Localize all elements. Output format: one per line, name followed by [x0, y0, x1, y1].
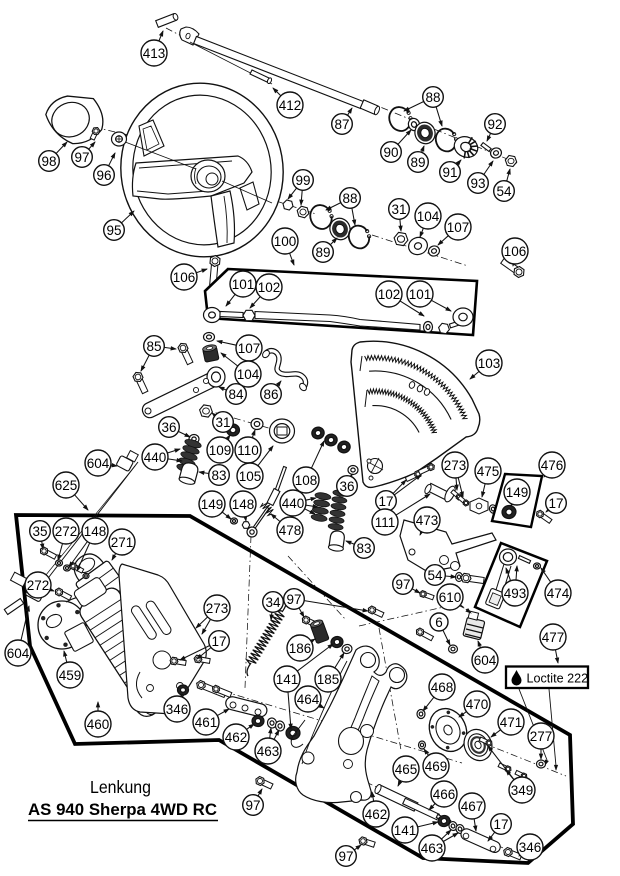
- svg-text:466: 466: [433, 787, 456, 802]
- svg-text:604: 604: [474, 653, 497, 668]
- svg-text:440: 440: [282, 496, 305, 511]
- svg-text:101: 101: [409, 287, 432, 302]
- svg-text:625: 625: [55, 478, 78, 493]
- svg-text:17: 17: [548, 496, 563, 511]
- svg-text:462: 462: [365, 807, 388, 822]
- svg-text:17: 17: [493, 817, 508, 832]
- svg-text:469: 469: [425, 759, 448, 774]
- svg-text:84: 84: [228, 387, 244, 402]
- svg-text:17: 17: [211, 634, 226, 649]
- svg-text:89: 89: [410, 155, 425, 170]
- svg-text:476: 476: [541, 458, 564, 473]
- svg-text:89: 89: [315, 245, 330, 260]
- svg-text:97: 97: [286, 592, 301, 607]
- svg-text:459: 459: [59, 668, 82, 683]
- svg-text:109: 109: [209, 443, 232, 458]
- svg-text:493: 493: [504, 586, 527, 601]
- svg-text:Lenkung: Lenkung: [90, 777, 151, 797]
- svg-text:108: 108: [295, 473, 318, 488]
- svg-text:110: 110: [237, 443, 259, 458]
- svg-text:461: 461: [195, 715, 218, 730]
- svg-text:111: 111: [375, 515, 396, 530]
- svg-text:97: 97: [245, 798, 260, 813]
- svg-text:105: 105: [239, 469, 262, 484]
- svg-text:470: 470: [466, 697, 489, 712]
- svg-text:86: 86: [263, 387, 278, 402]
- svg-text:54: 54: [427, 568, 443, 583]
- svg-text:186: 186: [289, 641, 312, 656]
- svg-text:148: 148: [84, 524, 107, 539]
- svg-text:99: 99: [295, 173, 310, 188]
- svg-text:440: 440: [144, 450, 167, 465]
- svg-text:34: 34: [265, 595, 281, 610]
- svg-text:Loctite 222: Loctite 222: [527, 672, 589, 686]
- svg-text:96: 96: [96, 168, 111, 183]
- svg-text:604: 604: [7, 646, 30, 661]
- svg-text:100: 100: [274, 234, 297, 249]
- svg-text:97: 97: [338, 849, 353, 864]
- svg-text:141: 141: [394, 823, 417, 838]
- svg-text:346: 346: [166, 702, 189, 717]
- svg-text:463: 463: [257, 744, 280, 759]
- svg-text:272: 272: [27, 578, 50, 593]
- svg-text:465: 465: [395, 762, 418, 777]
- svg-text:604: 604: [87, 456, 110, 471]
- svg-text:97: 97: [395, 577, 410, 592]
- svg-text:36: 36: [339, 479, 354, 494]
- svg-text:477: 477: [542, 630, 565, 645]
- svg-text:35: 35: [32, 524, 47, 539]
- svg-text:478: 478: [279, 523, 302, 538]
- svg-text:467: 467: [461, 799, 484, 814]
- svg-text:149: 149: [201, 497, 224, 512]
- svg-text:471: 471: [500, 715, 523, 730]
- svg-text:468: 468: [431, 680, 454, 695]
- svg-text:185: 185: [317, 672, 340, 687]
- svg-text:104: 104: [237, 367, 260, 382]
- svg-text:102: 102: [378, 287, 401, 302]
- svg-text:107: 107: [238, 341, 261, 356]
- svg-text:91: 91: [442, 165, 457, 180]
- svg-text:106: 106: [173, 270, 196, 285]
- svg-text:6: 6: [435, 615, 443, 630]
- svg-text:273: 273: [206, 601, 229, 616]
- svg-text:31: 31: [215, 415, 230, 430]
- svg-text:90: 90: [383, 145, 398, 160]
- svg-text:463: 463: [421, 841, 444, 856]
- svg-text:88: 88: [425, 90, 440, 105]
- svg-text:AS 940 Sherpa 4WD RC: AS 940 Sherpa 4WD RC: [28, 800, 217, 819]
- svg-text:83: 83: [211, 468, 226, 483]
- svg-text:102: 102: [258, 280, 281, 295]
- svg-text:92: 92: [487, 117, 502, 132]
- svg-text:475: 475: [477, 464, 500, 479]
- svg-text:85: 85: [146, 339, 161, 354]
- svg-text:462: 462: [225, 730, 248, 745]
- svg-text:31: 31: [391, 202, 406, 217]
- svg-text:141: 141: [276, 672, 299, 687]
- svg-text:413: 413: [143, 46, 166, 61]
- svg-text:148: 148: [232, 497, 255, 512]
- svg-text:106: 106: [504, 244, 527, 259]
- svg-text:149: 149: [506, 485, 529, 500]
- svg-text:98: 98: [41, 154, 56, 169]
- svg-text:54: 54: [496, 184, 512, 199]
- svg-text:107: 107: [447, 220, 470, 235]
- svg-text:83: 83: [356, 541, 371, 556]
- svg-text:464: 464: [297, 692, 320, 707]
- svg-text:271: 271: [111, 535, 134, 550]
- svg-text:610: 610: [439, 590, 462, 605]
- svg-text:104: 104: [417, 209, 440, 224]
- svg-text:101: 101: [232, 277, 255, 292]
- svg-text:473: 473: [416, 513, 439, 528]
- svg-text:474: 474: [547, 586, 570, 601]
- svg-text:272: 272: [55, 524, 78, 539]
- svg-text:88: 88: [342, 191, 357, 206]
- svg-text:95: 95: [106, 223, 121, 238]
- svg-text:17: 17: [378, 494, 393, 509]
- svg-text:87: 87: [334, 117, 349, 132]
- svg-text:273: 273: [444, 458, 467, 473]
- svg-text:412: 412: [279, 98, 302, 113]
- svg-text:97: 97: [74, 150, 89, 165]
- svg-text:349: 349: [511, 783, 534, 798]
- svg-text:103: 103: [478, 356, 501, 371]
- svg-text:36: 36: [161, 420, 176, 435]
- svg-text:346: 346: [519, 840, 542, 855]
- svg-text:93: 93: [470, 176, 485, 191]
- svg-text:460: 460: [87, 717, 110, 732]
- svg-text:277: 277: [530, 729, 553, 744]
